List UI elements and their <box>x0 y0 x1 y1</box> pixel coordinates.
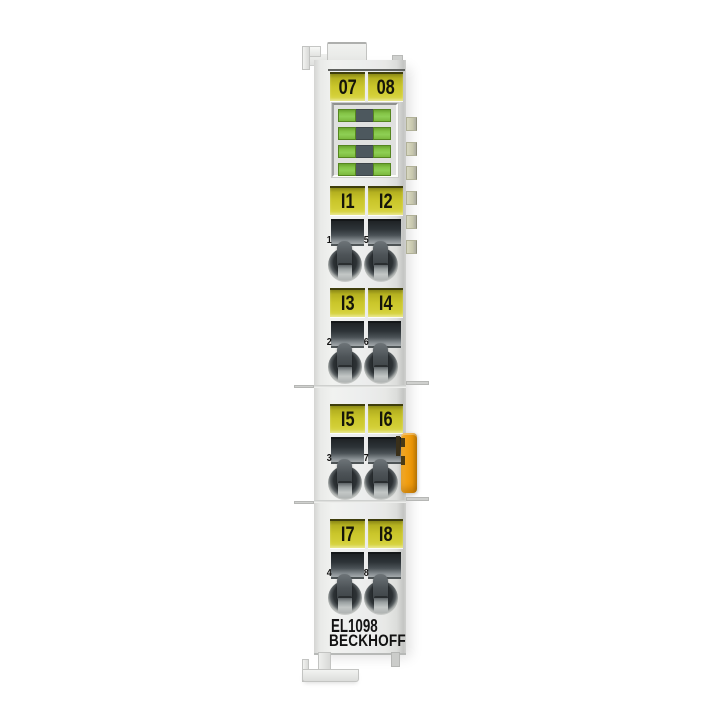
led-row-3 <box>338 145 391 158</box>
channel-label-i2-text: I2 <box>379 190 393 214</box>
channel-label-i3: I3 <box>330 288 365 317</box>
led-green-2-left <box>338 127 356 140</box>
metal-contact <box>374 596 388 613</box>
terminal-number: 2 <box>320 337 332 349</box>
led-row-2 <box>338 127 391 140</box>
terminal-section-i1-i2: I1 I2 1 5 <box>314 186 406 286</box>
terminal-section-i5-i6: I5 I6 3 7 <box>314 404 406 504</box>
metal-contact <box>374 365 388 382</box>
channel-label-i3-text: I3 <box>341 292 355 316</box>
knife-contact-4 <box>406 191 417 205</box>
metal-contact <box>374 263 388 280</box>
side-pin <box>406 381 429 385</box>
terminal-number: 8 <box>357 568 369 580</box>
side-pin <box>406 497 429 501</box>
knife-contact-5 <box>406 215 417 229</box>
led-label-07: 07 <box>330 72 365 101</box>
terminal-number: 7 <box>357 453 369 465</box>
top-hook-tooth <box>302 46 310 70</box>
channel-label-i7: I7 <box>330 519 365 548</box>
channel-label-i8: I8 <box>368 519 403 548</box>
knife-contact-3 <box>406 166 417 180</box>
channel-label-i7-text: I7 <box>341 523 355 547</box>
channel-label-i4-text: I4 <box>379 292 393 316</box>
product-photo-stage: 07 08 <box>0 0 720 720</box>
terminal-number: 6 <box>357 337 369 349</box>
channel-label-i6-text: I6 <box>379 408 393 432</box>
metal-contact <box>338 596 352 613</box>
led-row-1 <box>338 109 391 122</box>
latch-notch <box>401 456 405 465</box>
terminal-number: 5 <box>357 235 369 247</box>
knife-contact-1 <box>406 117 417 131</box>
metal-contact <box>338 263 352 280</box>
terminal-number: 3 <box>320 453 332 465</box>
channel-label-i1: I1 <box>330 186 365 215</box>
terminal-section-i7-i8: I7 I8 4 8 <box>314 519 406 619</box>
side-pin <box>294 501 314 504</box>
bottom-right-tab <box>391 652 400 667</box>
latch-notch <box>401 438 405 447</box>
led-label-08-text: 08 <box>376 76 394 100</box>
led-green-4-right <box>373 163 391 176</box>
led-green-3-right <box>373 145 391 158</box>
channel-label-i5-text: I5 <box>341 408 355 432</box>
led-green-4-left <box>338 163 356 176</box>
led-row-4 <box>338 163 391 176</box>
metal-contact <box>374 481 388 498</box>
led-green-1-left <box>338 109 356 122</box>
led-green-2-right <box>373 127 391 140</box>
brand-logo-text: BECKHOFF <box>329 631 406 651</box>
led-label-07-text: 07 <box>338 76 356 100</box>
channel-label-i5: I5 <box>330 404 365 433</box>
channel-label-i6: I6 <box>368 404 403 433</box>
terminal-number: 4 <box>320 568 332 580</box>
metal-contact <box>338 365 352 382</box>
led-green-3-left <box>338 145 356 158</box>
el1098-terminal-module: 07 08 <box>302 42 432 690</box>
channel-label-i8-text: I8 <box>379 523 393 547</box>
led-slot-2 <box>356 127 373 140</box>
knife-contact-6 <box>406 240 417 254</box>
terminal-section-i3-i4: I3 I4 2 6 <box>314 288 406 388</box>
knife-contact-2 <box>406 142 417 156</box>
channel-label-i2: I2 <box>368 186 403 215</box>
din-rail-hook-bottom <box>302 669 359 682</box>
latch-slit <box>396 436 400 456</box>
led-label-08: 08 <box>368 72 403 101</box>
channel-label-i1-text: I1 <box>341 190 355 214</box>
led-slot-4 <box>356 163 373 176</box>
led-green-1-right <box>373 109 391 122</box>
metal-contact <box>338 481 352 498</box>
housing-seam <box>314 500 406 503</box>
side-pin <box>294 385 314 388</box>
led-slot-1 <box>356 109 373 122</box>
housing-seam <box>314 385 406 388</box>
led-slot-3 <box>356 145 373 158</box>
terminal-number: 1 <box>320 235 332 247</box>
led-panel <box>332 103 398 177</box>
channel-label-i4: I4 <box>368 288 403 317</box>
